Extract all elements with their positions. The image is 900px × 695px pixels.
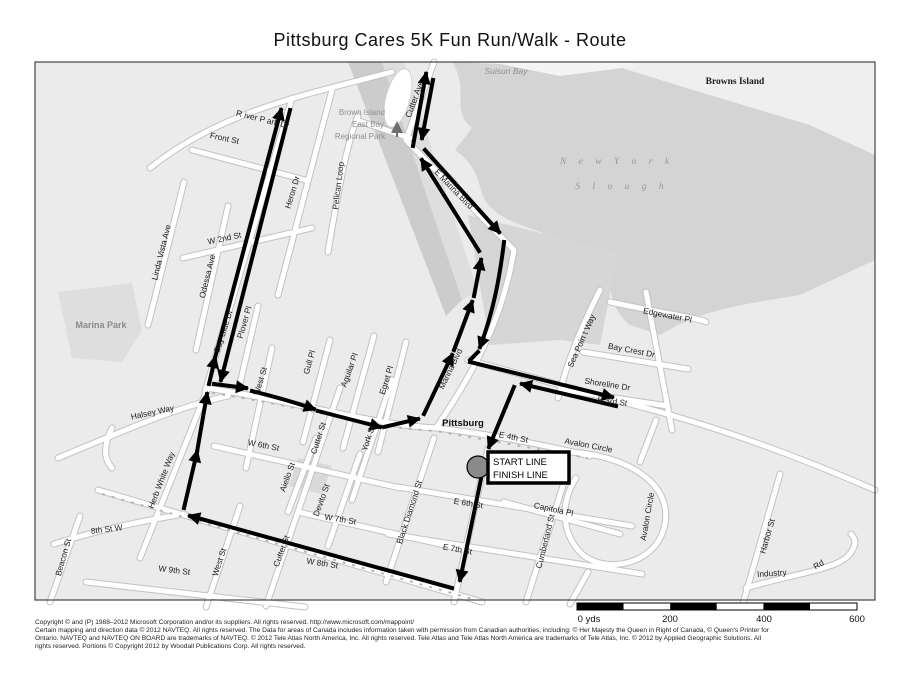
page-title: Pittsburg Cares 5K Fun Run/Walk - Route (0, 30, 900, 51)
start-finish-marker (467, 456, 489, 478)
street-label-industry: Industry (757, 567, 788, 579)
copyright-line: Certain mapping and direction data © 201… (35, 627, 865, 635)
copyright-line: Ontario. NAVTEQ and NAVTEQ ON BOARD are … (35, 635, 865, 643)
copyright-block: Copyright © and (P) 1988–2012 Microsoft … (35, 619, 865, 651)
label-browns-island: Browns Island (706, 77, 765, 87)
copyright-line: rights reserved. Portions © Copyright 20… (35, 643, 865, 651)
copyright-line: Copyright © and (P) 1988–2012 Microsoft … (35, 619, 865, 627)
label-brown-park-2: East Bay (352, 120, 384, 129)
label-brown-park-1: Brown Island (339, 108, 385, 117)
start-line-label: START LINE (493, 457, 547, 468)
route-map: Suisun Bay Browns Island N e w Y o r k S… (0, 0, 900, 695)
label-brown-park-3: Regional Park (335, 132, 386, 141)
label-marina-park: Marina Park (75, 320, 127, 330)
map-document: Pittsburg Cares 5K Fun Run/Walk - Route (0, 0, 900, 695)
label-pittsburg: Pittsburg (442, 418, 484, 429)
label-suisun-bay: Suisun Bay (485, 66, 529, 76)
finish-line-label: FINISH LINE (493, 470, 548, 481)
label-slough: S l o u g h (575, 182, 668, 192)
label-new-york: N e w Y o r k (559, 157, 674, 167)
